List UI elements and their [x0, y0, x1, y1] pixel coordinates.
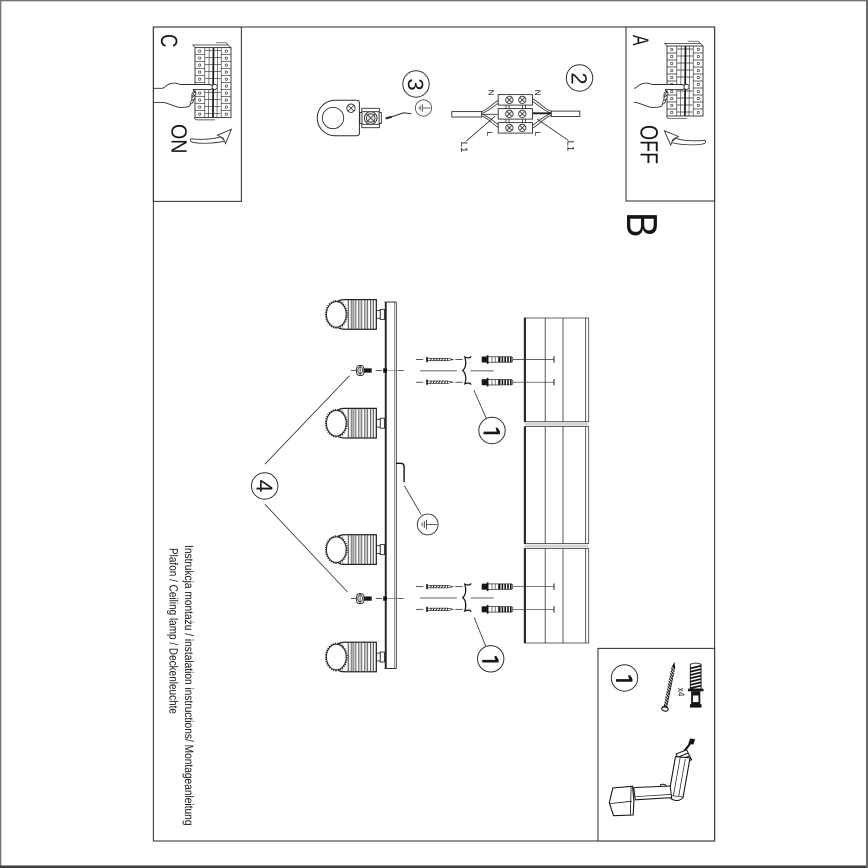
svg-text:2: 2	[567, 72, 592, 84]
svg-text:Plafon / Ceiling lamp / Decken: Plafon / Ceiling lamp / Deckenleuchte	[167, 548, 181, 714]
svg-text:C: C	[156, 34, 182, 47]
svg-text:L1: L1	[458, 142, 469, 153]
svg-text:OFF: OFF	[635, 125, 663, 164]
svg-text:A: A	[628, 35, 653, 46]
svg-text:ON: ON	[167, 124, 192, 154]
svg-text:L: L	[485, 132, 494, 137]
svg-text:3: 3	[403, 78, 428, 90]
svg-text:L: L	[533, 132, 542, 137]
svg-text:B: B	[617, 212, 665, 238]
svg-text:N: N	[533, 90, 542, 96]
svg-text:N: N	[487, 90, 496, 96]
svg-text:x4: x4	[675, 688, 686, 697]
svg-text:Instrukcja montażu / instalati: Instrukcja montażu / instalation instruc…	[182, 545, 196, 826]
svg-text:L1: L1	[564, 141, 575, 152]
svg-text:4: 4	[251, 480, 277, 493]
